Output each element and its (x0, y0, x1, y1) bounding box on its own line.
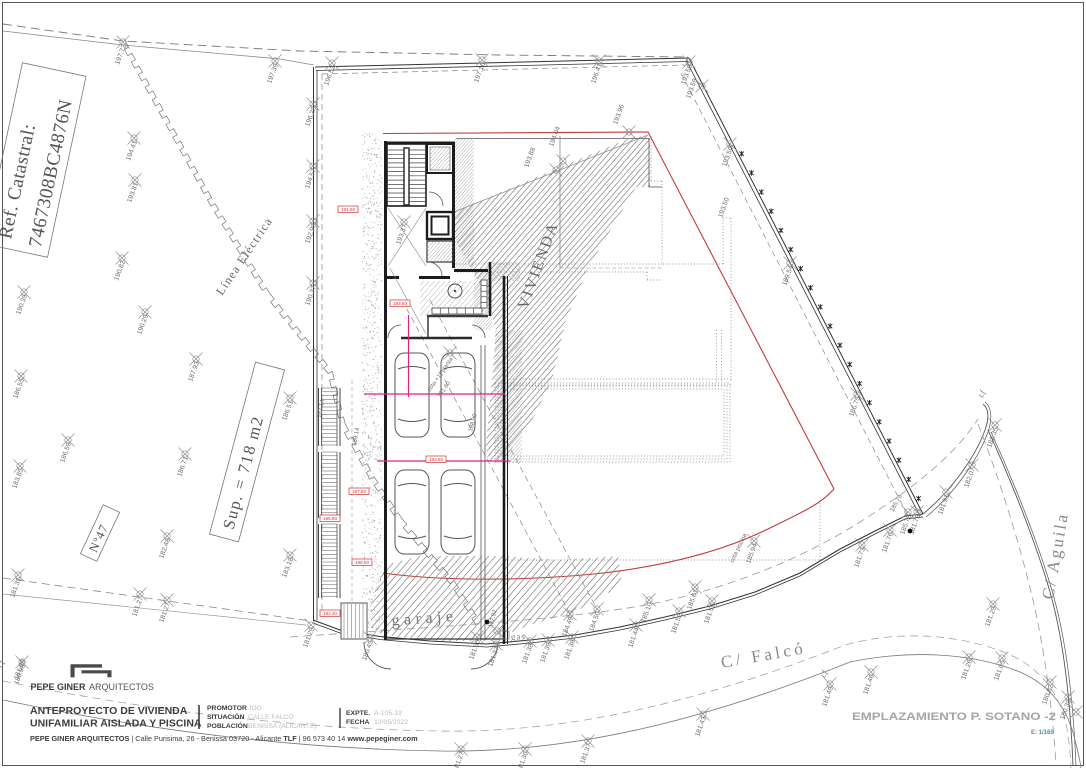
svg-text:PEPE GINER ARQUITECTOS | Calle: PEPE GINER ARQUITECTOS | Calle Purisima,… (30, 734, 418, 743)
svg-text:183.50: 183.50 (429, 457, 443, 462)
svg-text:CALLE FALCÓ: CALLE FALCÓ (248, 712, 294, 721)
svg-text:EMPLAZAMIENTO P. SOTANO -2: EMPLAZAMIENTO P. SOTANO -2 (852, 711, 1056, 723)
svg-text:182.40: 182.40 (323, 611, 337, 616)
svg-text:183.50: 183.50 (393, 301, 407, 306)
svg-text:ANTEPROYECTO DE VIVIENDA: ANTEPROYECTO DE VIVIENDA (30, 705, 188, 717)
svg-text:186.50: 186.50 (355, 560, 369, 565)
svg-text:EXPTE.: EXPTE. (346, 710, 370, 717)
svg-text:PROMOTOR: PROMOTOR (207, 705, 247, 712)
svg-text:185.50: 185.50 (323, 516, 337, 521)
svg-text:191.50: 191.50 (341, 207, 355, 212)
svg-text:POBLACIÓN: POBLACIÓN (207, 721, 248, 730)
svg-text:12/05/2022: 12/05/2022 (374, 719, 408, 726)
svg-text:UNIFAMILIAR AISLADA Y PISCINA: UNIFAMILIAR AISLADA Y PISCINA (30, 718, 202, 730)
svg-text:FECHA: FECHA (346, 719, 370, 726)
svg-text:187.50: 187.50 (352, 489, 366, 494)
svg-text:PEPE GINER: PEPE GINER (31, 682, 87, 692)
svg-text:JOG: JOG (248, 705, 262, 712)
svg-text:ARQUITECTOS: ARQUITECTOS (89, 682, 154, 692)
svg-text:SITUACIÓN: SITUACIÓN (207, 712, 244, 721)
svg-text:A-105-19: A-105-19 (374, 710, 402, 717)
svg-text:E: 1/160: E: 1/160 (1031, 730, 1054, 736)
svg-text:gas: gas (510, 631, 526, 642)
svg-text:BENISSA (ALICANTE): BENISSA (ALICANTE) (248, 723, 317, 730)
